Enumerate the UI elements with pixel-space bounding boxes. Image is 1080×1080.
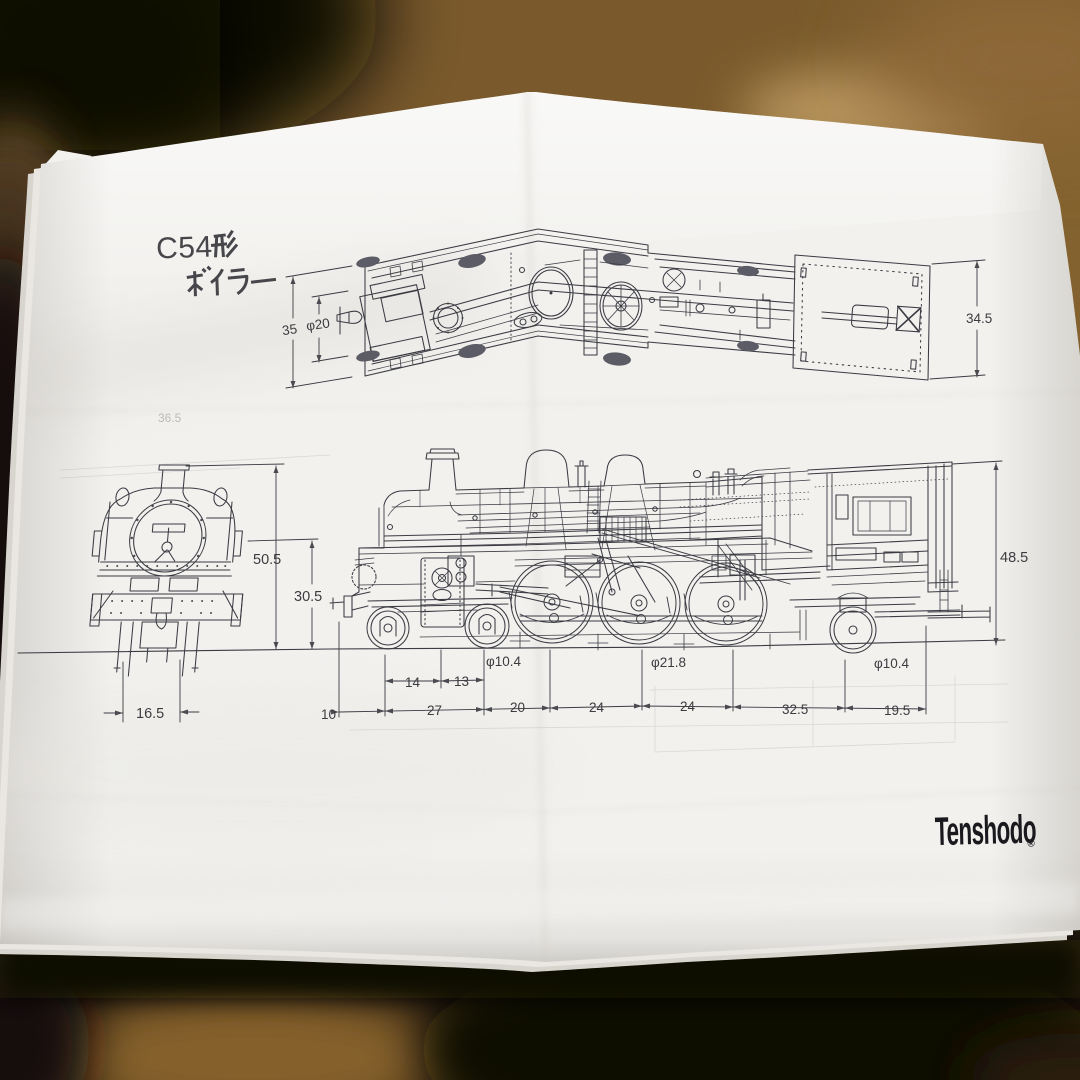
svg-text:C54: C54 <box>156 231 214 266</box>
svg-text:13: 13 <box>454 674 469 689</box>
svg-text:30.5: 30.5 <box>294 589 322 605</box>
svg-text:24: 24 <box>680 699 696 714</box>
svg-text:36.5: 36.5 <box>158 411 182 425</box>
svg-text:19.5: 19.5 <box>884 703 910 718</box>
svg-text:φ21.8: φ21.8 <box>651 655 686 670</box>
svg-text:32.5: 32.5 <box>782 702 808 717</box>
svg-text:20: 20 <box>510 700 525 715</box>
svg-text:φ10.4: φ10.4 <box>874 656 910 671</box>
svg-text:®: ® <box>1027 839 1035 850</box>
svg-text:50.5: 50.5 <box>253 552 281 568</box>
svg-text:27: 27 <box>427 703 442 718</box>
svg-text:24: 24 <box>589 700 605 715</box>
svg-text:16.5: 16.5 <box>136 706 164 722</box>
svg-text:φ10.4: φ10.4 <box>486 654 522 669</box>
svg-text:Tenshodo: Tenshodo <box>934 807 1036 854</box>
svg-text:10: 10 <box>321 707 336 722</box>
svg-text:48.5: 48.5 <box>1000 550 1028 566</box>
svg-text:14: 14 <box>405 675 421 690</box>
svg-text:34.5: 34.5 <box>966 311 992 326</box>
svg-text:35: 35 <box>281 321 298 338</box>
